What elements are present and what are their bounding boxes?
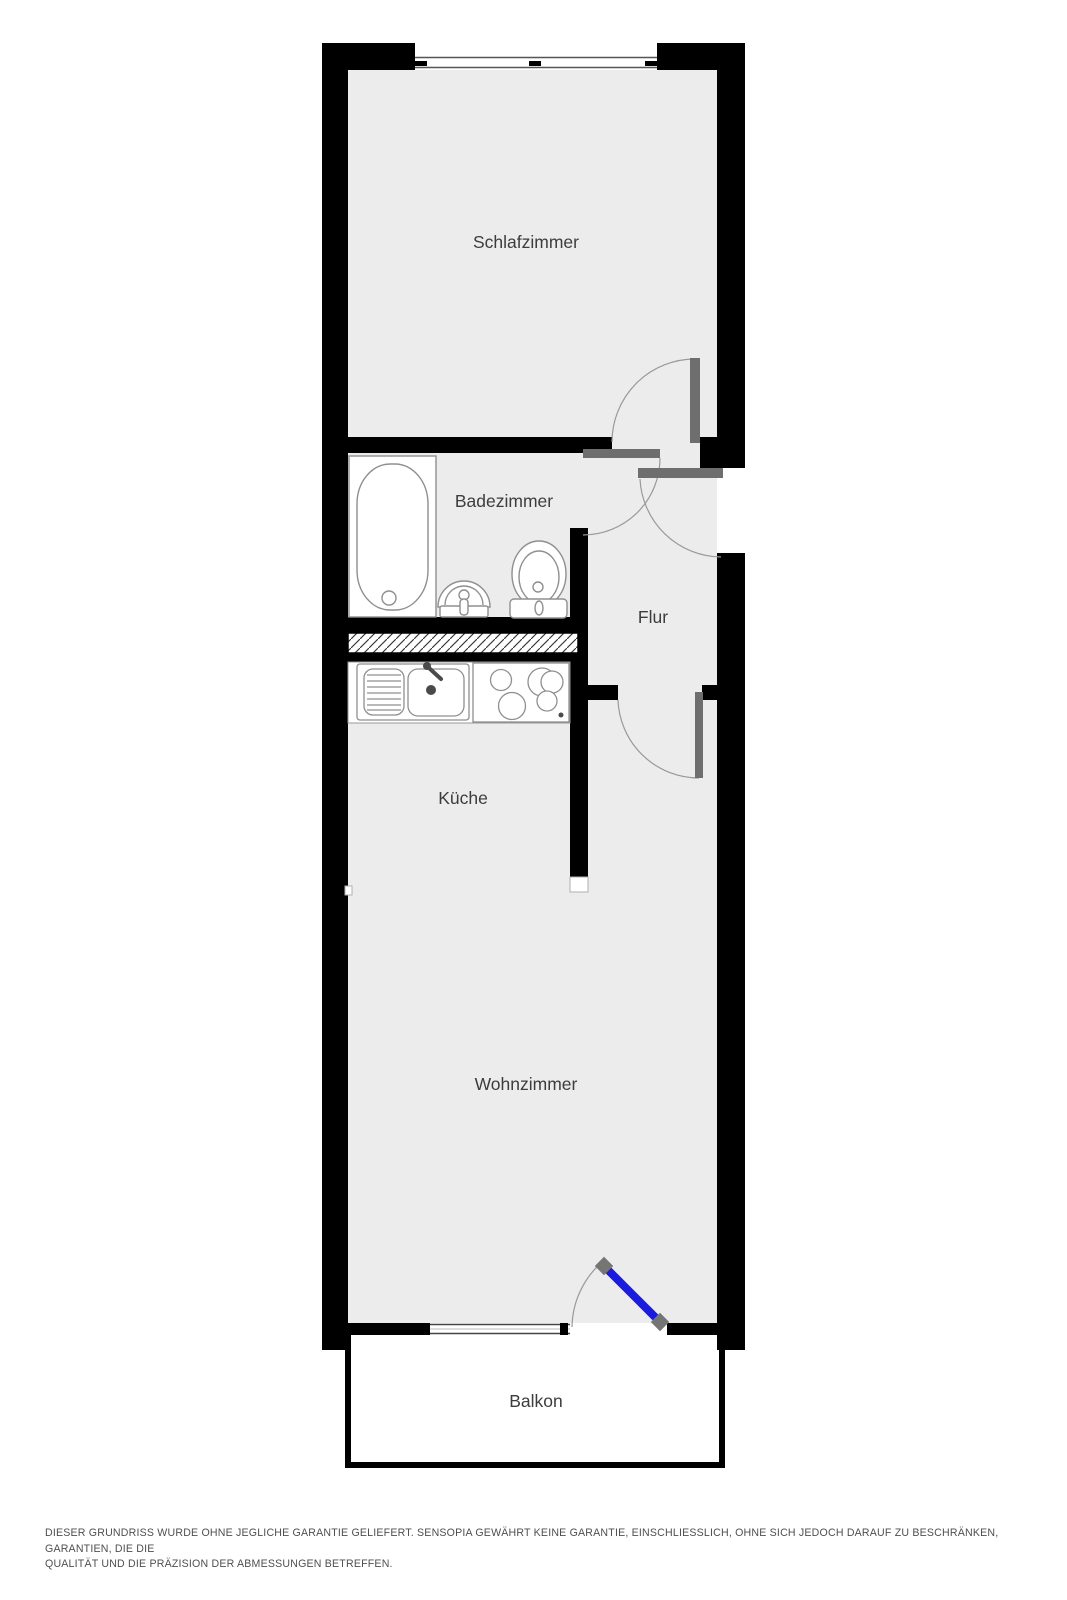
wall-top-left <box>348 43 415 70</box>
room-label-wohnzimmer: Wohnzimmer <box>475 1074 578 1094</box>
stove-icon <box>473 663 569 722</box>
window-mullion <box>645 61 657 66</box>
wall-wohnzimmer-bottom-right <box>667 1323 745 1335</box>
kitchen-sink-drain <box>426 685 436 695</box>
room-label-schlafzimmer: Schlafzimmer <box>473 232 579 252</box>
toilet-drain <box>533 582 543 592</box>
door-leaf <box>638 468 723 478</box>
disclaimer: DIESER GRUNDRISS WURDE OHNE JEGLICHE GAR… <box>45 1526 1045 1573</box>
stove-burner <box>541 671 563 693</box>
floorplan-drawing: Schlafzimmer Badezimmer Flur Küche Wohnz… <box>0 0 1067 1600</box>
window-mullion <box>529 61 541 66</box>
kitchen-sink-drainboard <box>364 669 404 715</box>
stove-indicator-dot <box>559 713 564 718</box>
window-mullion <box>560 1323 568 1335</box>
door-leaf <box>583 449 660 458</box>
stove-burner <box>491 670 512 691</box>
room-label-badezimmer: Badezimmer <box>455 491 553 511</box>
wohnzimmer-window <box>422 1323 570 1335</box>
bathtub-icon <box>349 456 436 617</box>
window-mullion <box>415 61 427 66</box>
wall-right-upper <box>717 43 745 468</box>
door-leaf <box>690 358 700 443</box>
wall-left-exterior <box>322 43 348 1350</box>
sink-faucet-stem <box>460 599 468 615</box>
stove-burner <box>537 691 557 711</box>
disclaimer-line-2: QUALITÄT UND DIE PRÄZISION DER ABMESSUNG… <box>45 1557 1045 1573</box>
wall-flur-door-stub-left <box>588 685 618 700</box>
kitchen-sink-icon <box>357 662 469 720</box>
room-floors <box>348 70 719 1462</box>
room-label-kueche: Küche <box>438 788 488 808</box>
stove-burner <box>499 693 526 720</box>
schlafzimmer-floor <box>348 70 717 437</box>
wall-top-right <box>657 43 717 70</box>
wall-end-cap-flur <box>570 877 588 892</box>
wall-flur-kitchen <box>570 633 588 877</box>
toilet-bowl-inner <box>519 551 559 603</box>
bathtub-inner <box>357 464 428 610</box>
kitchen-fixtures <box>348 662 570 723</box>
wall-bedroom-door-jamb <box>700 437 745 468</box>
wall-flur-door-stub-right <box>702 685 717 700</box>
schlafzimmer-window <box>415 43 657 70</box>
wall-end-cap-left <box>345 886 352 895</box>
wall-right-lower <box>717 553 745 1350</box>
wall-balkon-left <box>345 1335 351 1468</box>
toilet-icon <box>510 541 567 618</box>
wall-bath-bottom <box>348 617 578 633</box>
wall-balkon-bottom <box>345 1462 725 1468</box>
door-leaf <box>695 692 703 778</box>
room-label-balkon: Balkon <box>509 1391 563 1411</box>
floorplan-page: Schlafzimmer Badezimmer Flur Küche Wohnz… <box>0 0 1067 1600</box>
wall-wohnzimmer-bottom-left <box>348 1323 422 1335</box>
bathtub-drain <box>382 591 396 605</box>
wall-balkon-right <box>719 1335 725 1468</box>
window-mullion <box>422 1323 430 1335</box>
installation-shaft-hatch <box>348 633 578 653</box>
room-label-flur: Flur <box>638 607 668 627</box>
disclaimer-line-1: DIESER GRUNDRISS WURDE OHNE JEGLICHE GAR… <box>45 1526 1045 1557</box>
toilet-flush-button <box>535 601 543 615</box>
wall-bedroom-bottom <box>348 437 612 453</box>
